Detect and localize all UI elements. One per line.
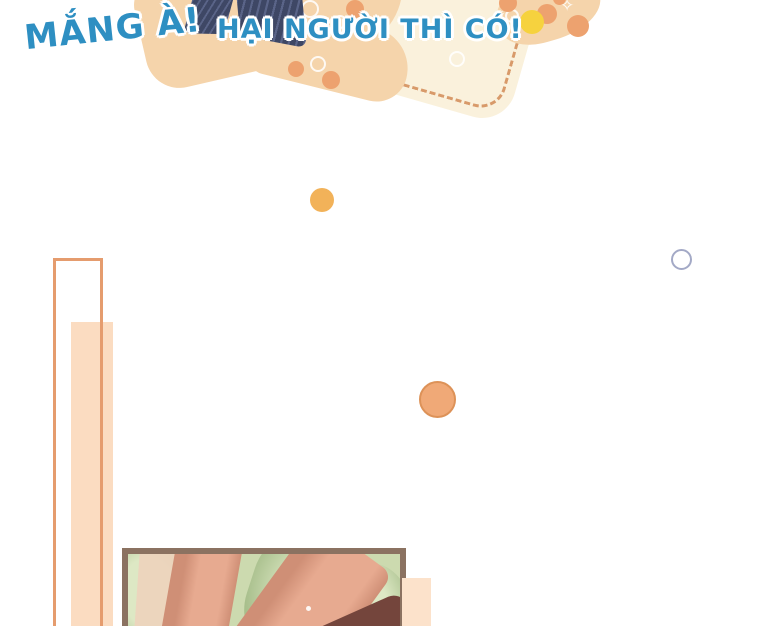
orange-dot (322, 71, 340, 89)
textured-orange-dot (419, 381, 456, 418)
left-outline-bar (53, 258, 103, 626)
highlight-speck (306, 606, 311, 611)
ring-icon (671, 249, 692, 270)
small-orange-dot (310, 188, 334, 212)
bubble-icon (310, 56, 326, 72)
speech-part-2: HẠI NGƯỜI THÌ CÓ! (217, 14, 523, 45)
orange-dot (567, 15, 589, 37)
orange-dot (288, 61, 304, 77)
yellow-dot (520, 10, 544, 34)
peach-corner-square (402, 578, 431, 626)
bubble-icon (449, 51, 465, 67)
speech-text: MẮNG À! HẠI NGƯỜI THÌ CÓ! (23, 0, 494, 52)
comic-panel (122, 548, 406, 626)
comic-page: ✧ MẮNG À! HẠI NGƯỜI THÌ CÓ! (0, 0, 760, 626)
